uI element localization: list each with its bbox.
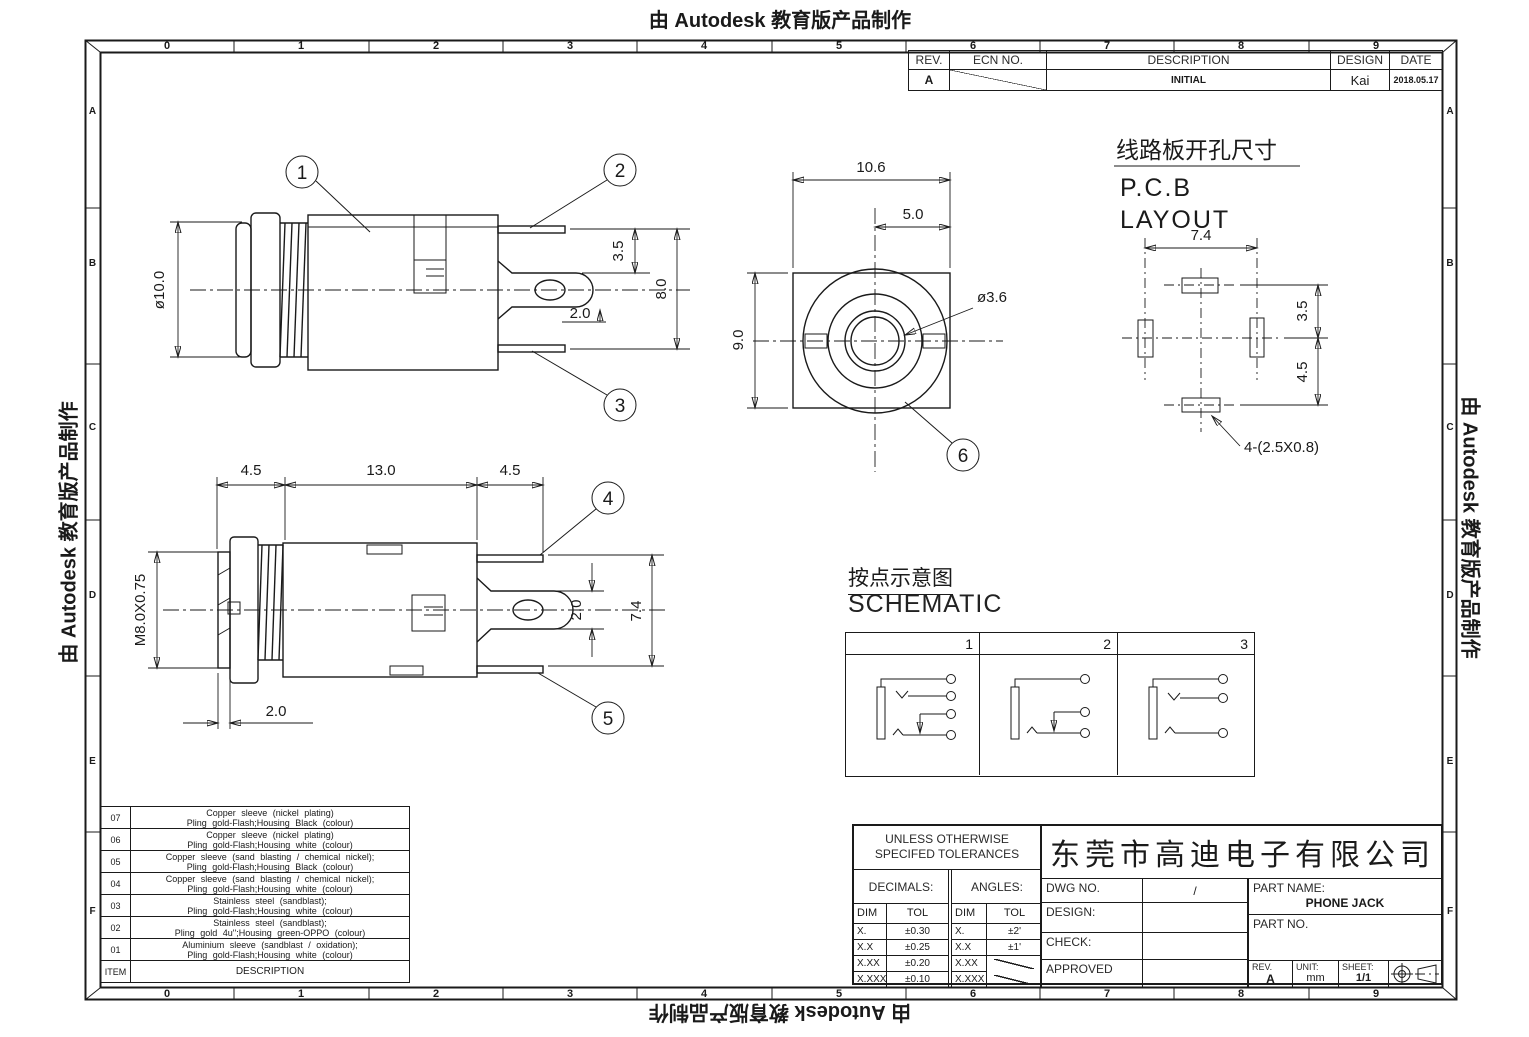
item-number: 02 [101, 917, 131, 938]
callout-3: 3 [615, 396, 626, 417]
rev-label: REV. [1249, 961, 1292, 972]
item-number: 06 [101, 829, 131, 850]
pad-centerlines [1122, 238, 1282, 432]
frame-row-label: C [85, 422, 100, 433]
frame-col-label: 5 [772, 988, 906, 1000]
check-value [1142, 933, 1247, 960]
angle-tol: ±1' [987, 940, 1042, 956]
sheet-cell: SHEET: 1/1 [1339, 961, 1389, 987]
item-number: 05 [101, 851, 131, 872]
front-view: 10.6 5.0 9.0 ø3.6 6 [735, 150, 1065, 490]
schematic-panel-1-label: 1 [846, 633, 980, 654]
projection-symbol-cell [1389, 961, 1441, 987]
schematic-panel-1 [846, 655, 980, 775]
ecn-value-diagonal [950, 70, 1047, 90]
table-row: 05 Copper sleeve (sand blasting / chemic… [101, 851, 409, 873]
angles-label: ANGLES: [952, 870, 1042, 904]
dimensions [148, 477, 664, 729]
tol-header: TOL [887, 904, 948, 924]
company-name: 东莞市高迪电子有限公司 [1042, 826, 1443, 879]
angle-tol-diagonal [994, 959, 1034, 969]
description-line: Copper sleeve (nickel plating) [206, 808, 334, 818]
decimal-tol: ±0.10 [887, 972, 948, 987]
description-line: Pling gold-Flash;Housing white (colour) [187, 950, 353, 960]
dim-4-5-left: 4.5 [241, 462, 262, 479]
dim-4-5-right: 4.5 [500, 462, 521, 479]
schematic-panel-3-label: 3 [1118, 633, 1254, 654]
design-value: Kai [1331, 70, 1390, 90]
description-value: INITIAL [1047, 70, 1331, 90]
dim-8-0: 8.0 [653, 279, 670, 300]
description-line: Stainless steel (sandblast); [213, 896, 327, 906]
sheet-label: SHEET: [1339, 961, 1388, 972]
dim-7-4: 7.4 [1191, 227, 1212, 244]
date-value: 2018.05.17 [1390, 70, 1442, 90]
frame-row-label: E [1443, 756, 1457, 767]
angle-dim: X.XXX [952, 972, 987, 987]
item-number: 04 [101, 873, 131, 894]
angle-tol-diagonal [994, 975, 1034, 985]
frame-col-label: 4 [637, 988, 771, 1000]
tol-header: TOL [987, 904, 1042, 924]
dim-5-0: 5.0 [903, 206, 924, 223]
dim-thread-m8: M8.0X0.75 [132, 574, 149, 647]
pcb-title-en-2: LAYOUT [1120, 206, 1230, 234]
frame-col-label: 3 [503, 988, 637, 1000]
unit-value: mm [1293, 972, 1338, 984]
callouts [286, 154, 636, 421]
callout-5: 5 [603, 709, 614, 730]
schematic-panel-3 [1118, 655, 1254, 775]
item-number: 03 [101, 895, 131, 916]
dim-3-5: 3.5 [1294, 301, 1311, 322]
description-header: DESCRIPTION [1047, 51, 1331, 69]
frame-row-label: F [85, 906, 100, 917]
frame-col-label: 6 [906, 988, 1040, 1000]
check-label: CHECK: [1042, 933, 1142, 960]
frame-col-label: 2 [369, 988, 503, 1000]
unit-cell: UNIT: mm [1293, 961, 1339, 987]
frame-col-label: 7 [1040, 988, 1174, 1000]
dim-header: DIM [854, 904, 887, 924]
decimal-tol: ±0.30 [887, 924, 948, 940]
angle-tol: ±2' [987, 924, 1042, 940]
decimal-tol: ±0.20 [887, 956, 948, 972]
dim-diameter-10: ø10.0 [151, 271, 168, 309]
pcb-title-en-1: P.C.B [1120, 174, 1192, 202]
dim-13-0: 13.0 [366, 462, 395, 479]
angle-dim: X. [952, 924, 987, 940]
dim-7-4-height: 7.4 [628, 601, 645, 622]
dim-2-0: 2.0 [570, 305, 591, 322]
table-row: 03 Stainless steel (sandblast);Pling gol… [101, 895, 409, 917]
design-header: DESIGN [1331, 51, 1390, 69]
frame-row-label: B [85, 258, 100, 269]
item-number: 07 [101, 807, 131, 828]
decimal-dim: X.XXX [854, 972, 887, 987]
rev-value: A [909, 70, 950, 90]
frame-col-label: 0 [100, 40, 234, 52]
dim-4-5: 4.5 [1294, 362, 1311, 383]
table-header-row: ITEM DESCRIPTION [101, 961, 409, 982]
decimal-dim: X.X [854, 940, 887, 956]
frame-col-label: 4 [637, 40, 771, 52]
description-line: Pling gold-Flash;Housing Black (colour) [187, 862, 354, 872]
description-line: Pling gold-Flash;Housing white (colour) [187, 906, 353, 916]
callout-4: 4 [603, 489, 614, 510]
side-view-2: 4.5 13.0 4.5 M8.0X0.75 2.0 2.0 7.4 4 5 [108, 445, 683, 755]
part-block: PART NAME: PHONE JACK PART NO. REV. A UN… [1249, 879, 1441, 987]
title-block: UNLESS OTHERWISE SPECIFED TOLERANCES DEC… [852, 824, 1443, 985]
angle-dim: X.XX [952, 956, 987, 972]
schematic-panel-2 [980, 655, 1118, 775]
tolerance-block: UNLESS OTHERWISE SPECIFED TOLERANCES DEC… [854, 826, 1042, 987]
pcb-layout: 线路板开孔尺寸 P.C.B LAYOUT 7.4 3.5 4.5 4-( [1100, 130, 1455, 475]
callout-1: 1 [297, 163, 308, 184]
pad-size-label: 4-(2.5X0.8) [1244, 439, 1319, 456]
frame-col-label: 8 [1174, 988, 1308, 1000]
dwg-no-value: / [1142, 879, 1247, 903]
part-name-value: PHONE JACK [1249, 896, 1441, 910]
description-line: Pling gold 4u'';Housing green-OPPO (colo… [175, 928, 366, 938]
frame-col-label: 3 [503, 40, 637, 52]
dim-10-6: 10.6 [856, 159, 885, 176]
angle-dim: X.X [952, 940, 987, 956]
callout-6: 6 [958, 446, 969, 467]
design-value [1142, 903, 1247, 933]
schematic-title-en: SCHEMATIC [848, 590, 1002, 619]
dim-header: DIM [952, 904, 987, 924]
table-row: 07 Copper sleeve (nickel plating)Pling g… [101, 807, 409, 829]
pcb-title-cn: 线路板开孔尺寸 [1116, 137, 1277, 163]
frame-row-label: A [85, 106, 100, 117]
frame-col-label: 2 [369, 40, 503, 52]
frame-row-label: F [1443, 906, 1457, 917]
description-header: DESCRIPTION [131, 961, 409, 982]
frame-col-label: 5 [772, 40, 906, 52]
side-view-1: ø10.0 3.5 8.0 2.0 1 2 3 [130, 145, 710, 445]
frame-row-label: D [85, 590, 100, 601]
decimal-tol: ±0.25 [887, 940, 948, 956]
part-no-label: PART NO. [1249, 915, 1312, 933]
table-row: 02 Stainless steel (sandblast);Pling gol… [101, 917, 409, 939]
frame-col-label: 9 [1309, 988, 1443, 1000]
callout-2: 2 [615, 161, 626, 182]
decimal-dim: X. [854, 924, 887, 940]
frame-col-label: 0 [100, 988, 234, 1000]
frame-row-label: A [1443, 106, 1457, 117]
schematic-table: 1 2 3 [845, 632, 1255, 777]
approval-block: DWG NO. / DESIGN: CHECK: APPROVED [1042, 879, 1249, 987]
description-line: Copper sleeve (sand blasting / chemical … [166, 874, 375, 884]
dim-9-0: 9.0 [730, 330, 747, 351]
description-line: Copper sleeve (nickel plating) [206, 830, 334, 840]
frame-col-label: 1 [234, 988, 368, 1000]
table-row: 01 Aluminium sleeve (sandblast / oxidati… [101, 939, 409, 961]
revision-table: REV. ECN NO. DESCRIPTION DESIGN DATE A I… [908, 50, 1443, 91]
ecn-header: ECN NO. [950, 51, 1047, 69]
tolerance-title-line2: SPECIFED TOLERANCES [854, 847, 1040, 862]
decimals-label: DECIMALS: [854, 870, 948, 904]
dim-2-0-bottom: 2.0 [266, 703, 287, 720]
description-line: Pling gold-Flash;Housing Black (colour) [187, 818, 354, 828]
date-header: DATE [1390, 51, 1442, 69]
projection-symbol-icon [1390, 961, 1440, 988]
dim-hole-3-6: ø3.6 [977, 289, 1007, 306]
drawing-sheet: 由 Autodesk 教育版产品制作 由 Autodesk 教育版产品制作 由 … [0, 0, 1529, 1037]
dimensions [1145, 248, 1328, 446]
description-line: Aluminium sleeve (sandblast / oxidation)… [182, 940, 358, 950]
rev-cell: REV. A [1249, 961, 1293, 987]
schematic-panel-2-label: 2 [980, 633, 1118, 654]
tolerance-title-line1: UNLESS OTHERWISE [854, 832, 1040, 847]
dim-3-5: 3.5 [610, 241, 627, 262]
approved-label: APPROVED [1042, 960, 1142, 987]
frame-row-label: D [1443, 590, 1457, 601]
approved-value [1142, 960, 1247, 987]
design-label: DESIGN: [1042, 903, 1142, 933]
description-line: Pling gold-Flash;Housing white (colour) [187, 884, 353, 894]
frame-row-label: E [85, 756, 100, 767]
dim-2-0-pin: 2.0 [568, 600, 585, 621]
table-row: 06 Copper sleeve (nickel plating)Pling g… [101, 829, 409, 851]
rev-value: A [1249, 972, 1292, 986]
part-name-label: PART NAME: [1249, 879, 1329, 897]
decimal-dim: X.XX [854, 956, 887, 972]
description-line: Stainless steel (sandblast); [213, 918, 327, 928]
table-row: 04 Copper sleeve (sand blasting / chemic… [101, 873, 409, 895]
dwg-no-label: DWG NO. [1042, 879, 1142, 903]
parts-table: 07 Copper sleeve (nickel plating)Pling g… [100, 806, 410, 983]
unit-label: UNIT: [1293, 961, 1338, 972]
item-number: 01 [101, 939, 131, 960]
rev-header: REV. [909, 51, 950, 69]
sheet-value: 1/1 [1339, 972, 1388, 984]
description-line: Copper sleeve (sand blasting / chemical … [166, 852, 375, 862]
item-header: ITEM [101, 961, 131, 982]
jack-body-outline [236, 213, 593, 370]
description-line: Pling gold-Flash;Housing white (colour) [187, 840, 353, 850]
frame-col-label: 1 [234, 40, 368, 52]
